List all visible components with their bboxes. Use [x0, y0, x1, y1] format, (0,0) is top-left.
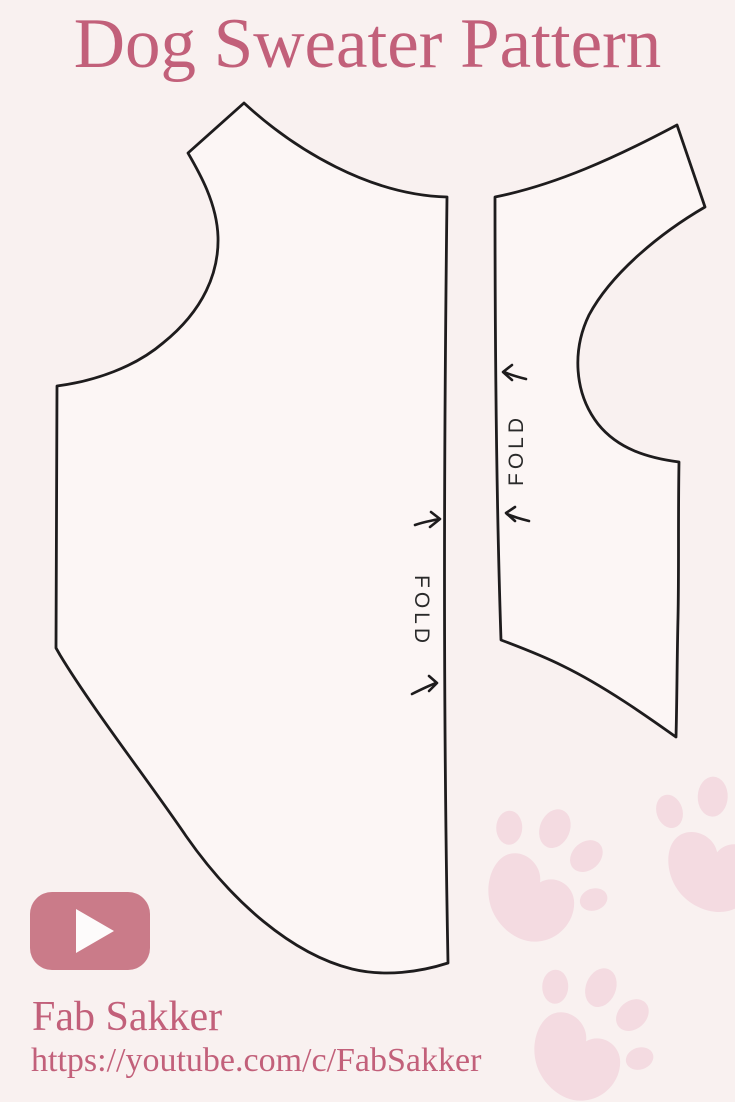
youtube-play-icon: [76, 909, 114, 953]
channel-url-link[interactable]: https://youtube.com/c/FabSakker: [31, 1042, 481, 1080]
page-title: Dog Sweater Pattern: [0, 4, 735, 86]
back-piece-fold-label: FOLD: [409, 575, 433, 647]
paw-print-icon: [493, 939, 687, 1102]
channel-name: Fab Sakker: [32, 993, 222, 1041]
poster-background: Dog Sweater Pattern FOLD FOLD Fab Sakker…: [0, 0, 735, 1102]
back-piece-outline: [56, 103, 448, 973]
paw-print-icon: [635, 765, 735, 923]
chest-piece-fold-label: FOLD: [505, 414, 529, 486]
paw-print-group: [447, 765, 735, 1102]
youtube-play-button[interactable]: [30, 892, 150, 970]
paw-print-icon: [447, 780, 641, 970]
